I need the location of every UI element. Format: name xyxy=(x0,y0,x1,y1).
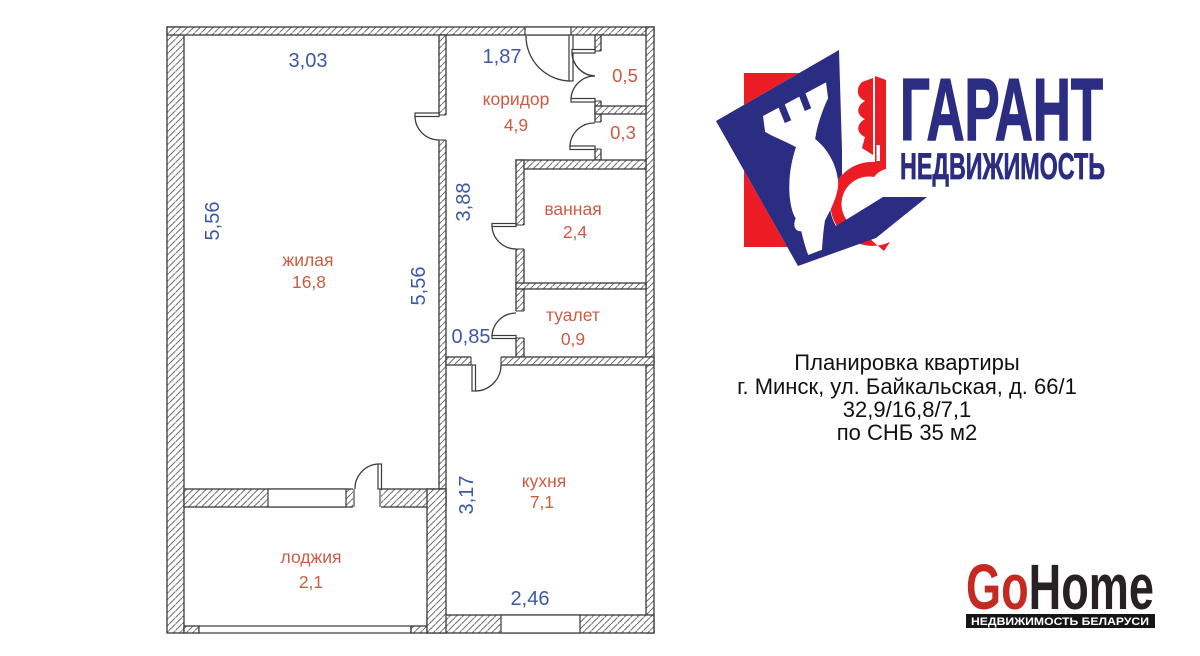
svg-text:по СНБ 35 м2: по СНБ 35 м2 xyxy=(837,420,978,445)
svg-text:0,85: 0,85 xyxy=(452,326,491,348)
svg-text:кухня: кухня xyxy=(522,471,567,491)
svg-text:коридор: коридор xyxy=(483,89,550,109)
svg-text:Планировка квартиры: Планировка квартиры xyxy=(794,350,1019,375)
svg-text:ванная: ванная xyxy=(544,199,601,219)
svg-text:г. Минск, ул. Байкальская, д.: г. Минск, ул. Байкальская, д. 66/1 xyxy=(737,374,1077,399)
svg-text:туалет: туалет xyxy=(546,305,600,325)
svg-text:НЕДВИЖИМОСТЬ БЕЛАРУСИ: НЕДВИЖИМОСТЬ БЕЛАРУСИ xyxy=(971,616,1149,628)
svg-text:2,1: 2,1 xyxy=(299,572,323,592)
svg-text:0,3: 0,3 xyxy=(610,122,636,143)
svg-text:НЕДВИЖИМОСТЬ: НЕДВИЖИМОСТЬ xyxy=(900,146,1105,187)
svg-text:лоджия: лоджия xyxy=(281,547,342,567)
svg-text:0,9: 0,9 xyxy=(561,329,585,349)
svg-text:2,46: 2,46 xyxy=(511,588,550,610)
svg-text:3,88: 3,88 xyxy=(453,183,475,222)
svg-text:5,56: 5,56 xyxy=(202,202,224,241)
svg-text:1,87: 1,87 xyxy=(483,46,522,68)
svg-text:16,8: 16,8 xyxy=(292,272,326,292)
svg-text:32,9/16,8/7,1: 32,9/16,8/7,1 xyxy=(843,397,971,422)
svg-text:ГАРАНТ: ГАРАНТ xyxy=(900,60,1103,159)
svg-text:3,17: 3,17 xyxy=(456,476,478,515)
svg-text:5,56: 5,56 xyxy=(408,267,430,306)
svg-text:жилая: жилая xyxy=(283,250,334,270)
svg-text:4,9: 4,9 xyxy=(504,115,528,135)
svg-text:2,4: 2,4 xyxy=(563,222,588,242)
svg-text:3,03: 3,03 xyxy=(289,50,328,72)
svg-text:GoHome: GoHome xyxy=(966,551,1154,623)
svg-text:7,1: 7,1 xyxy=(530,492,554,512)
svg-text:0,5: 0,5 xyxy=(612,65,638,86)
